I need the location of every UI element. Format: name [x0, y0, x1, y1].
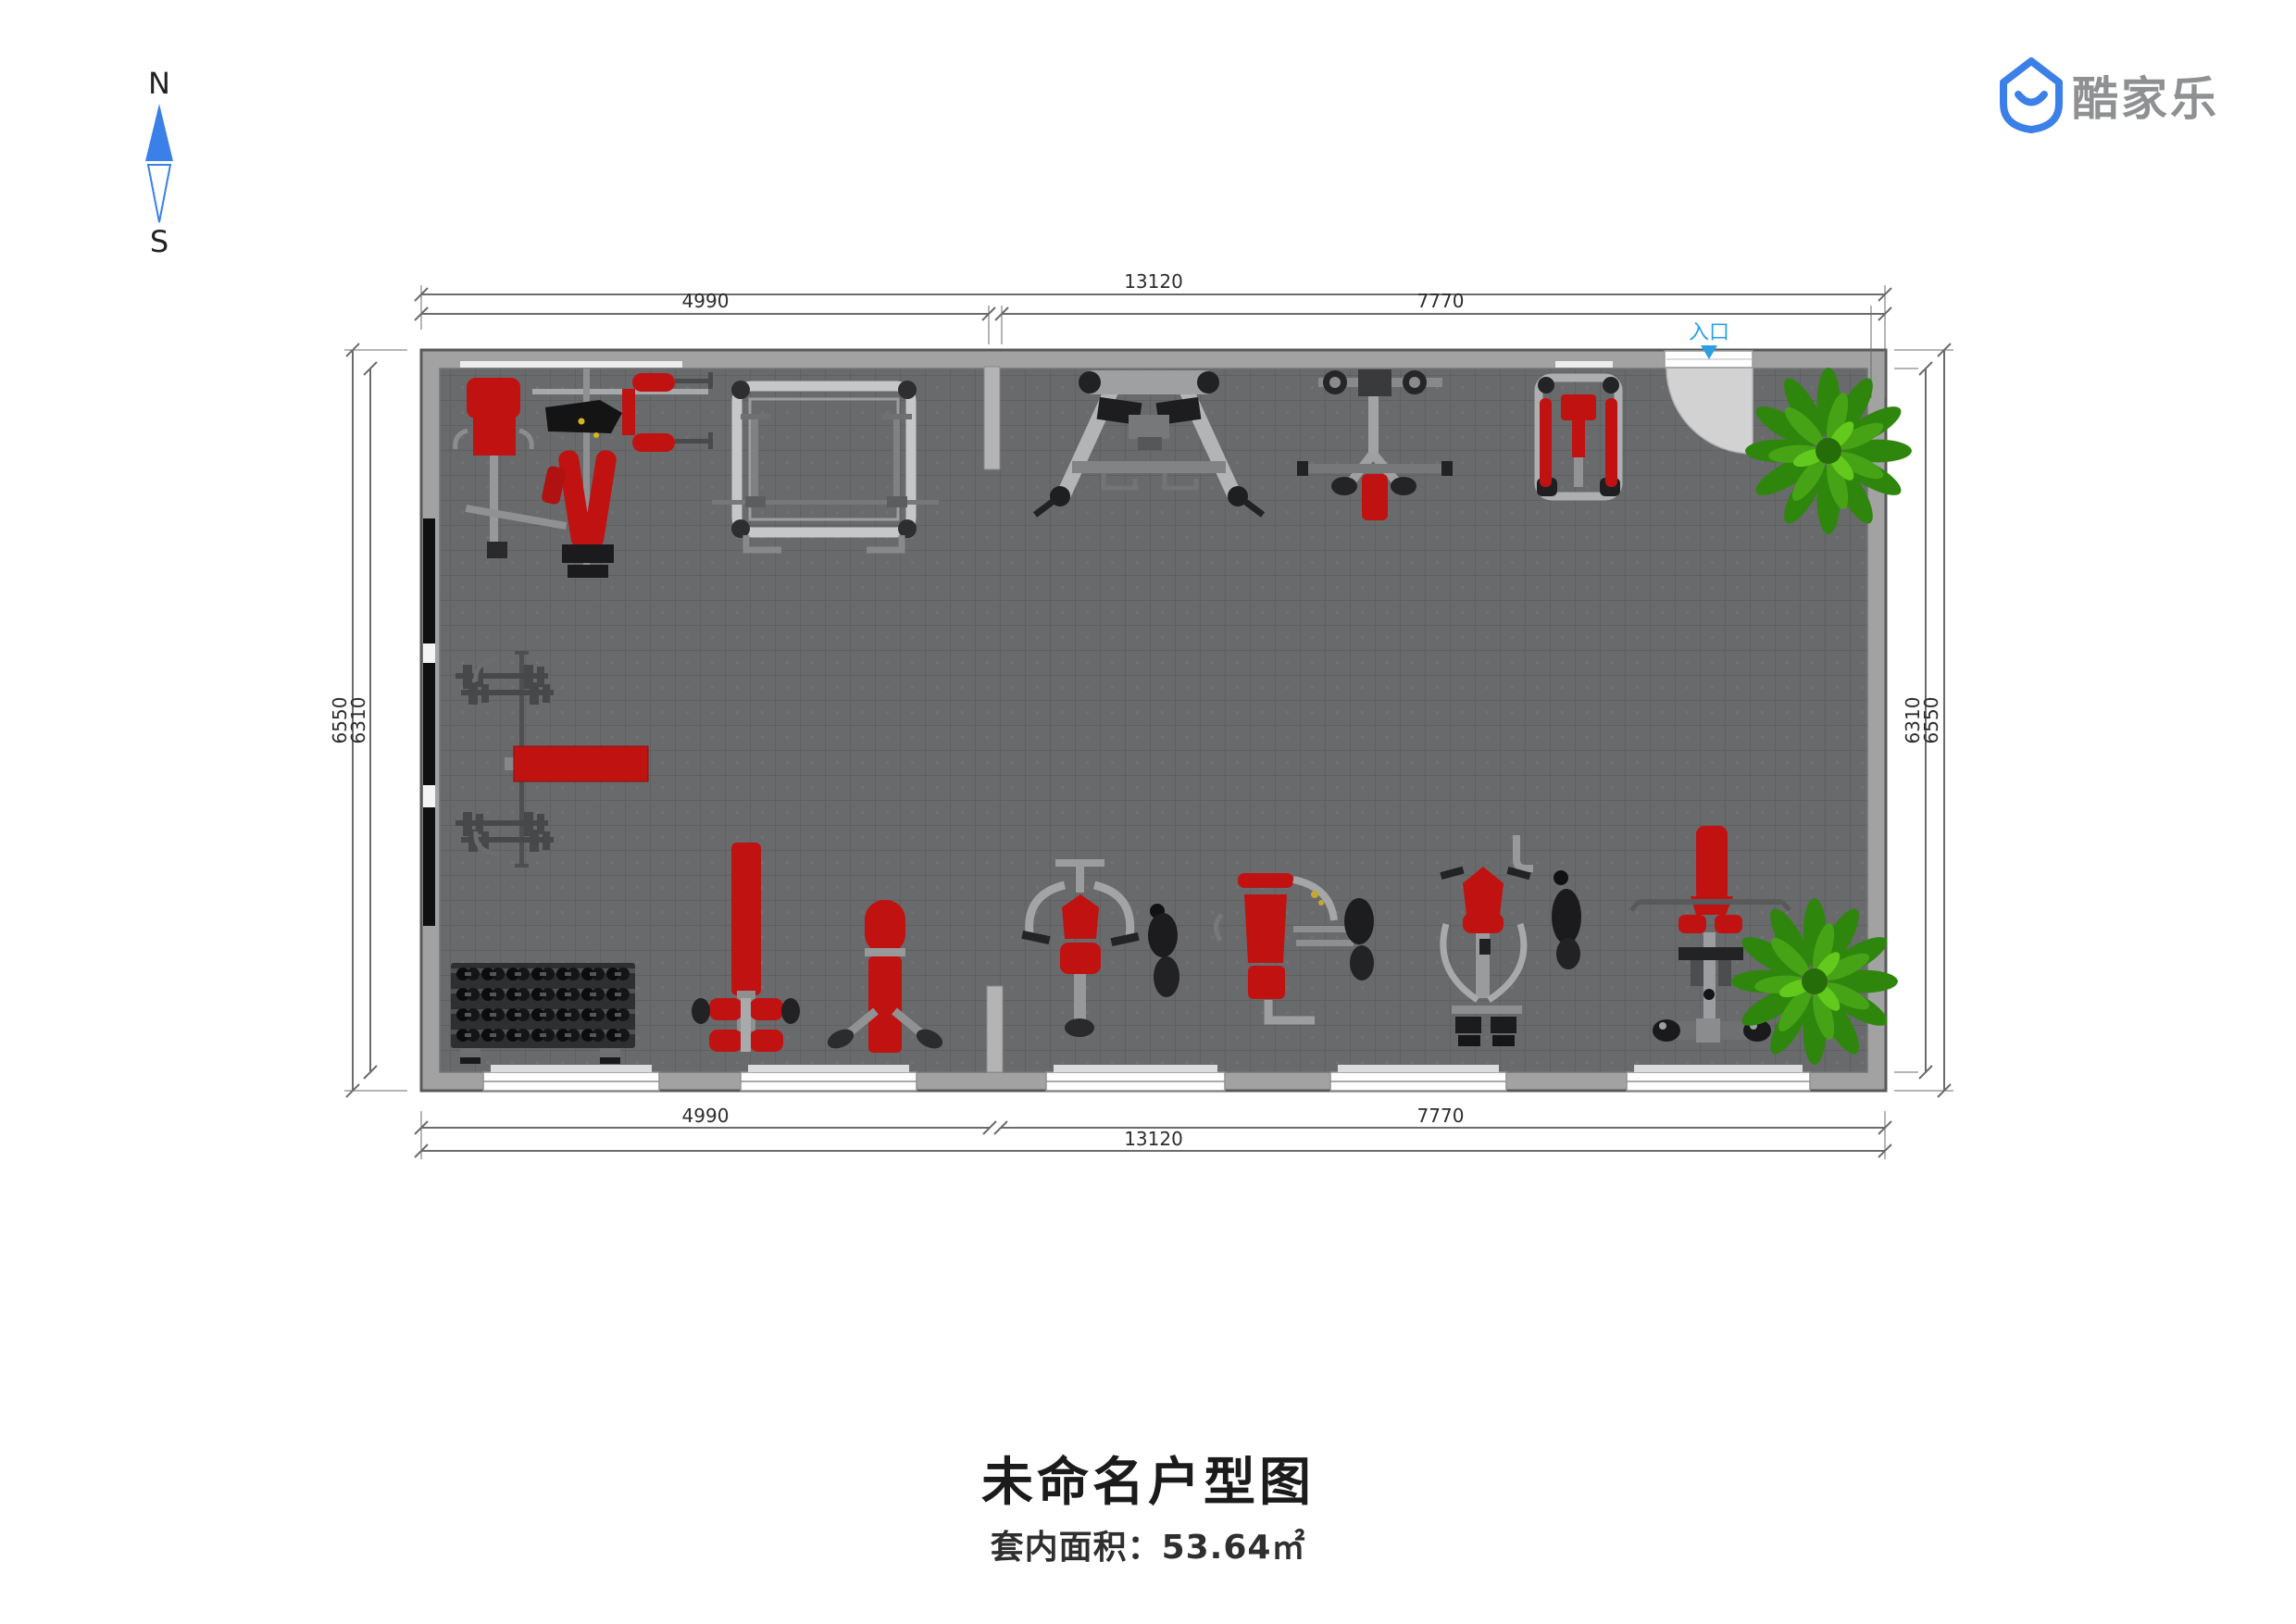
- dim-bottom-right: 7770: [1417, 1105, 1465, 1127]
- brand-logo: 酷家乐: [2003, 61, 2219, 130]
- dim-top-left: 4990: [682, 290, 730, 312]
- kujiale-shield-icon: [2003, 61, 2059, 130]
- partition-stub-top: [984, 367, 1000, 469]
- brand-name: 酷家乐: [2072, 72, 2219, 126]
- partition-stub-bottom: [987, 986, 1003, 1072]
- compass: N S: [145, 66, 173, 259]
- compass-south-label: S: [150, 224, 168, 259]
- floorplan-page: N S 酷家乐: [0, 0, 2296, 1624]
- top-window-strip: [1555, 361, 1613, 368]
- dim-bottom-total: 13120: [1124, 1128, 1183, 1150]
- mirror-strips: [423, 518, 435, 926]
- floorplan-canvas: N S 酷家乐: [0, 0, 2296, 1624]
- compass-needle-south: [148, 165, 170, 222]
- plan-title: 未命名户型图: [0, 1441, 2296, 1516]
- dim-top-total: 13120: [1124, 270, 1183, 293]
- entrance-label: 入口: [1689, 321, 1729, 344]
- floor: [440, 369, 1867, 1072]
- dim-left-inner: 6310: [347, 697, 369, 744]
- dim-top-right: 7770: [1417, 290, 1465, 312]
- dim-right-outer: 6550: [1920, 697, 1942, 744]
- top-window-strip: [460, 361, 682, 368]
- compass-needle-north: [145, 104, 173, 161]
- compass-north-label: N: [148, 66, 170, 101]
- dim-bottom-left: 4990: [682, 1105, 730, 1127]
- plan-area-label: 套内面积：53.64㎡: [0, 1520, 2296, 1568]
